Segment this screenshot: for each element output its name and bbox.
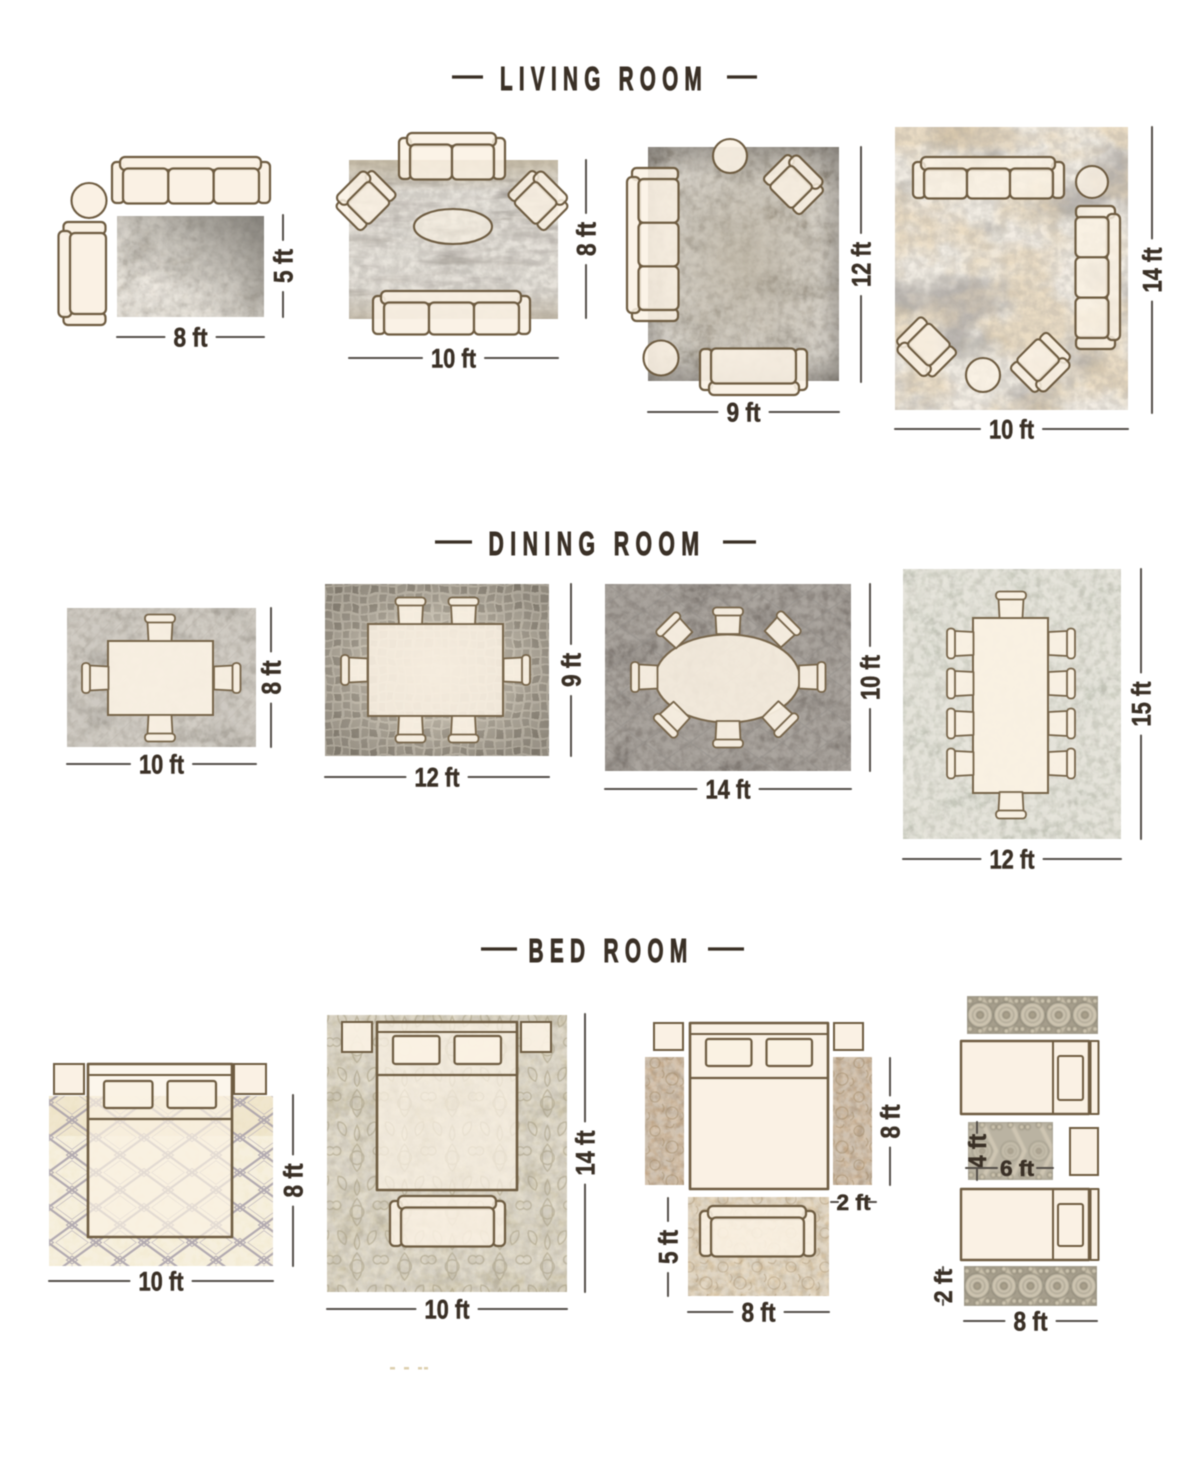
svg-text:14 ft: 14 ft (1138, 248, 1168, 293)
svg-text:2 ft: 2 ft (930, 1268, 958, 1303)
svg-text:8 ft: 8 ft (572, 222, 602, 256)
svg-text:5 ft: 5 ft (269, 249, 299, 283)
svg-text:5 ft: 5 ft (654, 1230, 684, 1264)
svg-text:14 ft: 14 ft (706, 775, 751, 805)
svg-text:9 ft: 9 ft (727, 398, 761, 428)
svg-text:14 ft: 14 ft (571, 1131, 601, 1176)
svg-text:12 ft: 12 ft (990, 845, 1035, 875)
svg-text:2 ft: 2 ft (837, 1190, 872, 1215)
svg-text:8 ft: 8 ft (876, 1104, 906, 1138)
svg-text:LIVING ROOM: LIVING ROOM (500, 60, 708, 97)
svg-text:15 ft: 15 ft (1127, 682, 1157, 727)
svg-text:10 ft: 10 ft (856, 655, 886, 700)
svg-text:DINING ROOM: DINING ROOM (489, 525, 706, 562)
svg-text:8 ft: 8 ft (742, 1298, 776, 1328)
svg-text:6 ft: 6 ft (1000, 1156, 1035, 1181)
svg-text:8 ft: 8 ft (1014, 1307, 1048, 1337)
svg-text:12 ft: 12 ft (847, 242, 877, 287)
svg-text:4 ft: 4 ft (964, 1133, 992, 1168)
svg-text:10 ft: 10 ft (989, 415, 1034, 445)
svg-text:8 ft: 8 ft (257, 660, 287, 694)
svg-text:8 ft: 8 ft (279, 1163, 309, 1197)
svg-text:10 ft: 10 ft (425, 1295, 470, 1325)
svg-text:8 ft: 8 ft (174, 323, 208, 353)
svg-text:10 ft: 10 ft (431, 344, 476, 374)
svg-text:12 ft: 12 ft (415, 763, 460, 793)
svg-text:10 ft: 10 ft (139, 750, 184, 780)
svg-text:9 ft: 9 ft (557, 653, 587, 687)
svg-text:BED ROOM: BED ROOM (529, 932, 694, 969)
svg-text:10 ft: 10 ft (139, 1267, 184, 1297)
